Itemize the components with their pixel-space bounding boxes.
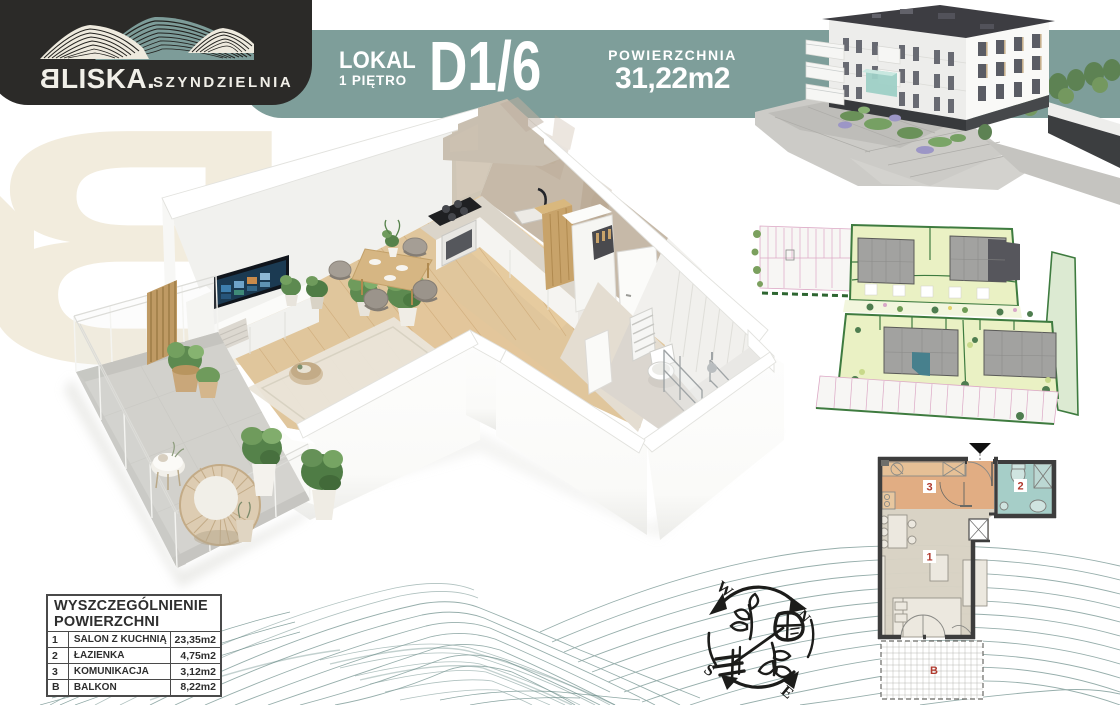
svg-text:B: B [930,665,938,677]
svg-text:B: B [40,63,60,94]
svg-text:2: 2 [1018,481,1024,493]
svg-text:SZYNDZIELNIA: SZYNDZIELNIA [153,74,293,91]
svg-text:S: S [701,661,718,680]
svg-text:3: 3 [927,482,933,494]
svg-text:LISKA.: LISKA. [61,63,155,94]
svg-text:W: W [713,578,736,601]
svg-text:1: 1 [927,552,933,564]
